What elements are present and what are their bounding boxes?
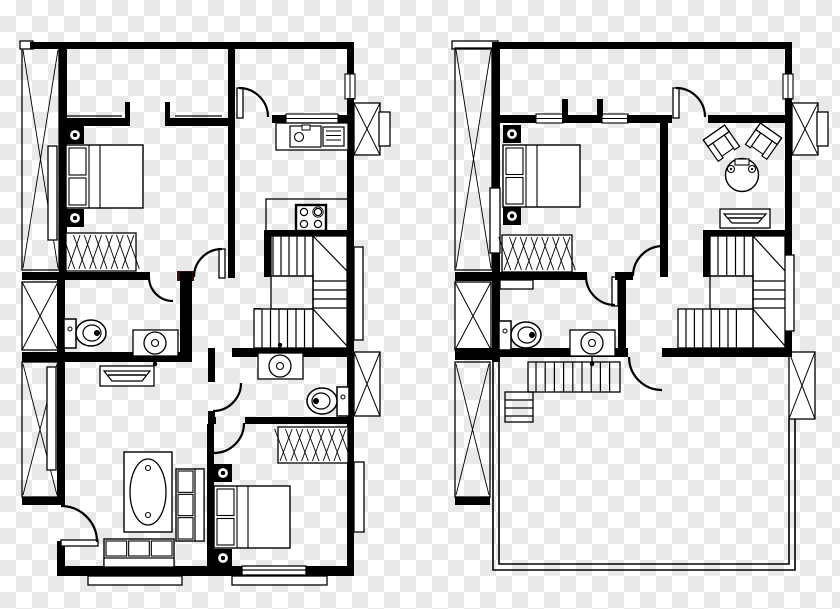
interior-wall xyxy=(245,417,354,424)
floor-plan-svg xyxy=(0,0,840,609)
terrace-steps xyxy=(528,362,620,392)
stair-flight xyxy=(678,309,753,348)
hall-door-arc xyxy=(676,88,705,117)
bathroom-door-arc xyxy=(586,276,615,305)
exterior-wall-top xyxy=(495,42,792,49)
ground-floor-plan xyxy=(20,41,390,585)
interior-wall xyxy=(208,417,216,424)
window-sill xyxy=(354,247,363,340)
stair-landing xyxy=(710,276,753,309)
bedroom-door-arc xyxy=(633,246,663,276)
exterior-wall-top xyxy=(30,42,354,49)
interior-wall xyxy=(708,115,785,123)
washbasin-icon-basin xyxy=(144,332,166,354)
terrace-parapet-outer xyxy=(493,362,795,570)
exterior-wall-right xyxy=(347,98,354,576)
exterior-wall-right xyxy=(347,42,354,75)
sofa-icon-cushion xyxy=(178,471,193,492)
stove-icon xyxy=(296,205,326,231)
nightstand-icon-dot xyxy=(221,556,225,560)
interior-wall xyxy=(562,115,603,123)
floor-plan-canvas xyxy=(0,0,840,609)
armchair-icon xyxy=(745,123,781,159)
nightstand-icon-dot xyxy=(510,214,514,218)
interior-wall xyxy=(615,272,633,280)
pillow xyxy=(69,178,86,205)
round-table-icon-cup xyxy=(751,168,753,170)
sofa-icon-cushion xyxy=(106,541,127,556)
sofa-icon-cushion xyxy=(151,541,172,556)
bathroom-door-arc xyxy=(149,277,173,301)
exterior-wall-left xyxy=(57,362,65,505)
kitchen-sink-icon-faucet xyxy=(302,125,310,130)
pillow xyxy=(506,178,523,205)
pillow xyxy=(217,489,234,516)
stair-wall xyxy=(264,230,271,277)
exterior-wall xyxy=(455,272,493,281)
door-leaf xyxy=(612,277,618,306)
nightstand-icon-dot xyxy=(73,133,77,137)
door-threshold xyxy=(88,576,182,585)
sofa-icon-cushion xyxy=(178,494,193,515)
toilet-icon-drain xyxy=(313,398,319,404)
doormat-icon-bowl xyxy=(104,371,150,381)
pillow xyxy=(506,148,523,175)
sofa-icon-cushion xyxy=(129,541,150,556)
toilet-icon-tank xyxy=(499,321,511,350)
exterior-wall xyxy=(455,497,490,505)
interior-wall xyxy=(207,424,214,576)
door-leaf xyxy=(237,88,243,118)
nightstand-icon-dot xyxy=(221,471,225,475)
interior-wall xyxy=(662,348,792,357)
door-threshold xyxy=(500,280,533,289)
interior-wall xyxy=(22,272,150,280)
exterior-wall-right xyxy=(785,42,792,75)
sofa-icon-back xyxy=(104,558,174,567)
interior-wall xyxy=(165,118,235,126)
glazing-panel xyxy=(48,146,57,240)
wall-return xyxy=(597,99,603,116)
washbasin-icon-basin xyxy=(581,332,603,354)
door-leaf xyxy=(673,88,679,118)
window-sill xyxy=(232,576,327,585)
window-sill xyxy=(354,462,364,532)
interior-wall xyxy=(627,115,672,123)
stair-flight xyxy=(271,236,313,276)
bathtub-icon-tub xyxy=(130,459,166,525)
interior-wall xyxy=(660,123,668,277)
washbasin-icon-basin xyxy=(269,355,291,377)
toilet-icon-drain xyxy=(529,332,535,338)
interior-wall xyxy=(60,118,130,126)
interior-wall xyxy=(208,348,215,382)
wall-return xyxy=(165,102,170,118)
round-table-icon-tray xyxy=(735,159,749,165)
stair-flight xyxy=(710,236,753,276)
nightstand-icon-dot xyxy=(510,132,514,136)
toilet-icon-drain xyxy=(94,330,100,336)
washbasin-icon-faucet xyxy=(278,343,282,347)
bedroom2-door-arc xyxy=(214,423,244,453)
bathroom2-door-arc xyxy=(213,383,241,411)
exterior-wall-bottom xyxy=(57,566,354,576)
terrace-steps xyxy=(505,392,533,422)
glazing-panel xyxy=(47,367,56,470)
door-leaf xyxy=(219,249,225,278)
toilet-icon-tank xyxy=(64,319,76,348)
upper-floor-plan xyxy=(452,41,828,570)
ac-unit xyxy=(379,112,390,146)
interior-wall xyxy=(703,230,788,236)
terrace-door-arc xyxy=(629,357,662,390)
interior-wall xyxy=(228,42,235,278)
armchair-icon xyxy=(703,125,739,161)
exterior-wall-left xyxy=(59,42,67,118)
stair-landing xyxy=(271,276,313,309)
door-leaf xyxy=(61,540,98,546)
stair-wall xyxy=(703,236,710,277)
glazing-panel xyxy=(490,188,500,253)
pillow xyxy=(217,519,234,546)
nightstand-icon-dot xyxy=(73,216,77,220)
round-table-icon-cup xyxy=(730,168,732,170)
interior-wall xyxy=(493,272,587,280)
sofa-icon-back xyxy=(195,469,204,541)
interior-wall xyxy=(180,272,192,362)
kitchen-sink-icon-drainer xyxy=(323,127,344,146)
wall-return xyxy=(562,99,568,116)
toilet-icon-tank xyxy=(337,387,349,416)
pillow xyxy=(69,148,86,175)
interior-wall xyxy=(618,280,626,357)
sofa-icon-cushion xyxy=(178,518,193,539)
exterior-wall xyxy=(22,497,58,505)
bedroom-door-arc xyxy=(194,249,222,277)
entry-door-arc xyxy=(61,506,97,542)
interior-wall xyxy=(500,115,537,123)
wall-return xyxy=(125,102,130,118)
ac-unit xyxy=(817,112,828,146)
